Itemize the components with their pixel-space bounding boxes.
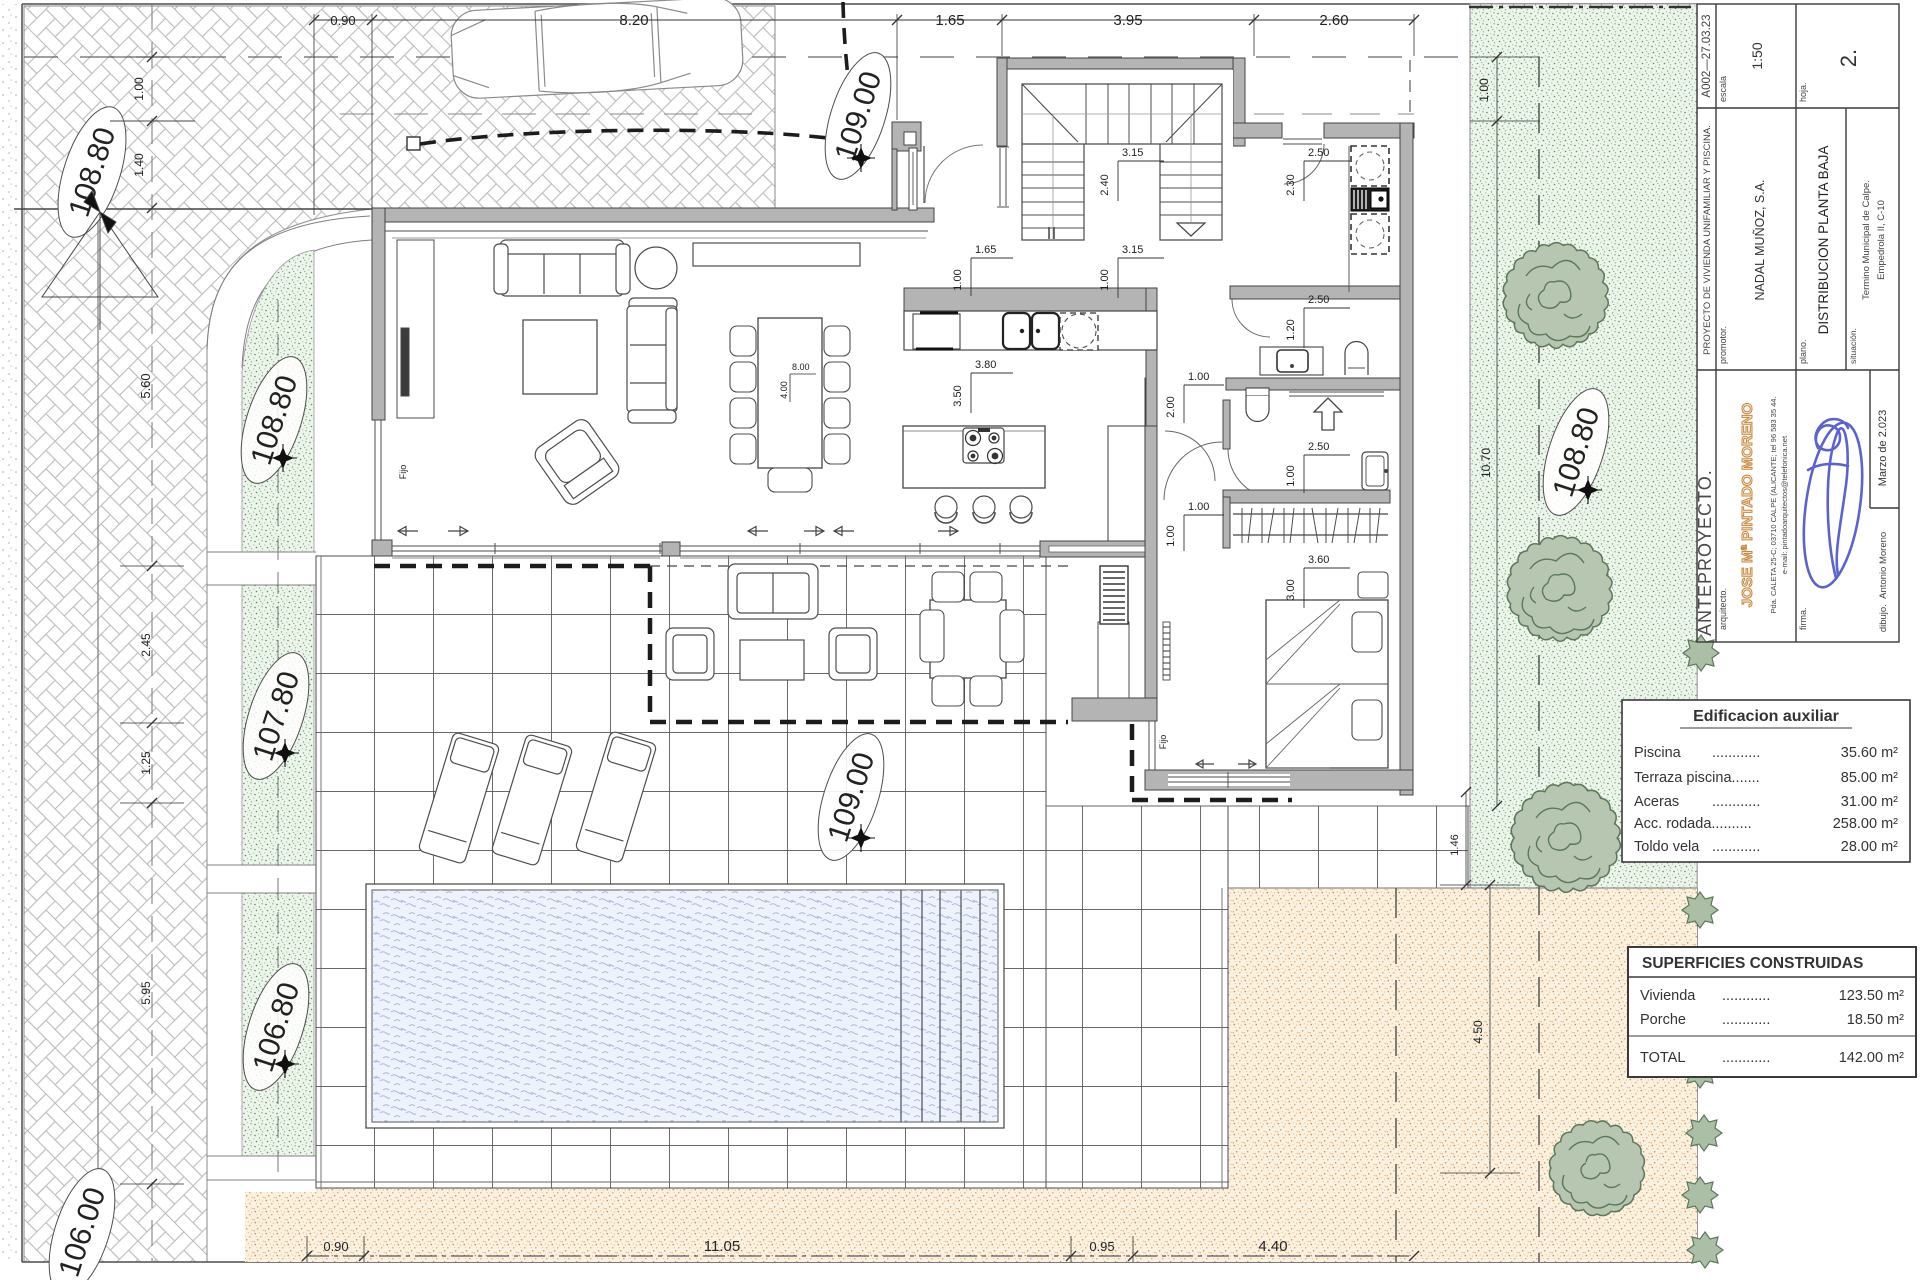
svg-text:Terraza piscina.......: Terraza piscina....... [1634, 770, 1760, 786]
svg-text:Edificacion auxiliar: Edificacion auxiliar [1693, 708, 1839, 725]
svg-text:JOSE Mª PINTADO MORENO: JOSE Mª PINTADO MORENO [1739, 402, 1756, 607]
svg-text:1.00: 1.00 [1188, 371, 1209, 383]
svg-text:1.65: 1.65 [975, 244, 996, 256]
svg-text:situación.: situación. [1848, 328, 1858, 364]
svg-text:2.50: 2.50 [1308, 294, 1329, 306]
svg-text:2.00: 2.00 [1165, 396, 1177, 417]
svg-text:0.90: 0.90 [330, 13, 355, 28]
svg-text:258.00 m²: 258.00 m² [1833, 816, 1898, 832]
svg-text:4.00: 4.00 [779, 381, 789, 399]
svg-text:Porche: Porche [1640, 1012, 1686, 1028]
svg-text:Piscina: Piscina [1634, 745, 1682, 761]
svg-text:SUPERFICIES CONSTRUIDAS: SUPERFICIES CONSTRUIDAS [1642, 955, 1863, 972]
svg-text:............: ............ [1722, 988, 1770, 1004]
svg-text:Fijo: Fijo [1158, 735, 1168, 750]
svg-text:1.00: 1.00 [1165, 525, 1177, 546]
svg-text:1.00: 1.00 [952, 269, 964, 290]
svg-text:1.40: 1.40 [132, 153, 146, 177]
svg-text:2.50: 2.50 [1308, 147, 1329, 159]
svg-text:1.65: 1.65 [935, 12, 964, 29]
svg-text:3.15: 3.15 [1122, 244, 1143, 256]
svg-text:10.70: 10.70 [1479, 448, 1493, 478]
svg-text:Termino Municipal de Calpe.: Termino Municipal de Calpe. [1861, 180, 1872, 300]
svg-text:ANTEPROYECTO.: ANTEPROYECTO. [1695, 469, 1715, 636]
svg-text:Empedrola II, C-10: Empedrola II, C-10 [1876, 200, 1887, 280]
svg-text:3.80: 3.80 [975, 359, 996, 371]
svg-text:4.40: 4.40 [1258, 1238, 1287, 1255]
svg-text:11.05: 11.05 [704, 1238, 740, 1255]
svg-text:1.00: 1.00 [1099, 269, 1111, 290]
svg-text:1.00: 1.00 [132, 77, 146, 101]
svg-text:TOTAL: TOTAL [1640, 1050, 1685, 1066]
svg-text:escala: escala [1718, 76, 1728, 102]
svg-text:2.30: 2.30 [1285, 174, 1297, 195]
svg-text:123.50 m²: 123.50 m² [1839, 988, 1904, 1004]
svg-text:............: ............ [1722, 1050, 1770, 1066]
svg-text:2.50: 2.50 [1308, 441, 1329, 453]
svg-text:0.95: 0.95 [1089, 1239, 1114, 1254]
svg-text:0.90: 0.90 [323, 1239, 348, 1254]
svg-text:1.00: 1.00 [1285, 465, 1297, 486]
svg-text:1.20: 1.20 [1285, 319, 1297, 340]
svg-text:hoja.: hoja. [1798, 82, 1808, 102]
svg-text:142.00 m²: 142.00 m² [1839, 1050, 1904, 1066]
svg-text:2.: 2. [1836, 49, 1861, 67]
svg-text:8.00: 8.00 [792, 362, 810, 372]
svg-text:28.00 m²: 28.00 m² [1841, 839, 1898, 855]
svg-text:............: ............ [1712, 745, 1760, 761]
svg-text:Aceras: Aceras [1634, 794, 1679, 810]
svg-text:35.60 m²: 35.60 m² [1841, 745, 1898, 761]
svg-text:e-mail: pintadoarquitectos@tel: e-mail: pintadoarquitectos@telefonica.ne… [1780, 435, 1789, 574]
svg-text:3.95: 3.95 [1113, 12, 1142, 29]
svg-text:3.60: 3.60 [1308, 554, 1329, 566]
svg-text:Acc. rodada..........: Acc. rodada.......... [1634, 816, 1752, 832]
svg-text:4.50: 4.50 [1471, 1020, 1485, 1044]
svg-text:85.00 m²: 85.00 m² [1841, 770, 1898, 786]
svg-text:5.95: 5.95 [139, 981, 153, 1005]
svg-text:NADAL MUÑOZ, S.A.: NADAL MUÑOZ, S.A. [1753, 179, 1767, 300]
svg-text:8.20: 8.20 [619, 12, 648, 29]
svg-text:2.60: 2.60 [1319, 12, 1348, 29]
svg-text:DISTRIBUCION PLANTA BAJA: DISTRIBUCION PLANTA BAJA [1816, 146, 1831, 335]
svg-text:............: ............ [1712, 839, 1760, 855]
svg-text:Marzo de 2.023: Marzo de 2.023 [1877, 410, 1889, 486]
svg-text:1.25: 1.25 [139, 751, 153, 775]
svg-text:dibujo. Antonio Moreno: dibujo. Antonio Moreno [1878, 532, 1889, 632]
svg-text:31.00 m²: 31.00 m² [1841, 794, 1898, 810]
svg-text:1:50: 1:50 [1749, 42, 1765, 69]
svg-text:5.60: 5.60 [138, 373, 153, 398]
svg-text:18.50 m²: 18.50 m² [1847, 1012, 1904, 1028]
svg-text:promotor.: promotor. [1718, 326, 1728, 364]
svg-text:arquitecto.: arquitecto. [1718, 588, 1728, 630]
svg-text:3.15: 3.15 [1122, 147, 1143, 159]
svg-text:plano.: plano. [1798, 339, 1808, 364]
svg-text:1.00: 1.00 [1477, 78, 1491, 102]
svg-text:Vivienda: Vivienda [1640, 988, 1696, 1004]
svg-text:A002—27.03.23: A002—27.03.23 [1701, 14, 1713, 97]
svg-text:1.00: 1.00 [1188, 501, 1209, 513]
svg-text:1.46: 1.46 [1449, 834, 1461, 855]
svg-text:PROYECTO DE VIVIENDA UNIFAMILI: PROYECTO DE VIVIENDA UNIFAMILIAR Y PISCI… [1702, 125, 1713, 355]
svg-text:Toldo vela: Toldo vela [1634, 839, 1700, 855]
svg-text:Pda. CALETA 25-C; 03710 CALPE: Pda. CALETA 25-C; 03710 CALPE (ALICANTE;… [1769, 396, 1778, 613]
svg-text:2.40: 2.40 [1099, 174, 1111, 195]
svg-text:firma.: firma. [1798, 608, 1808, 631]
svg-text:............: ............ [1722, 1012, 1770, 1028]
svg-text:3.50: 3.50 [952, 385, 964, 406]
svg-text:............: ............ [1712, 794, 1760, 810]
svg-text:3.00: 3.00 [1285, 579, 1297, 600]
svg-text:Fijo: Fijo [398, 465, 408, 480]
svg-text:2.45: 2.45 [139, 633, 153, 657]
